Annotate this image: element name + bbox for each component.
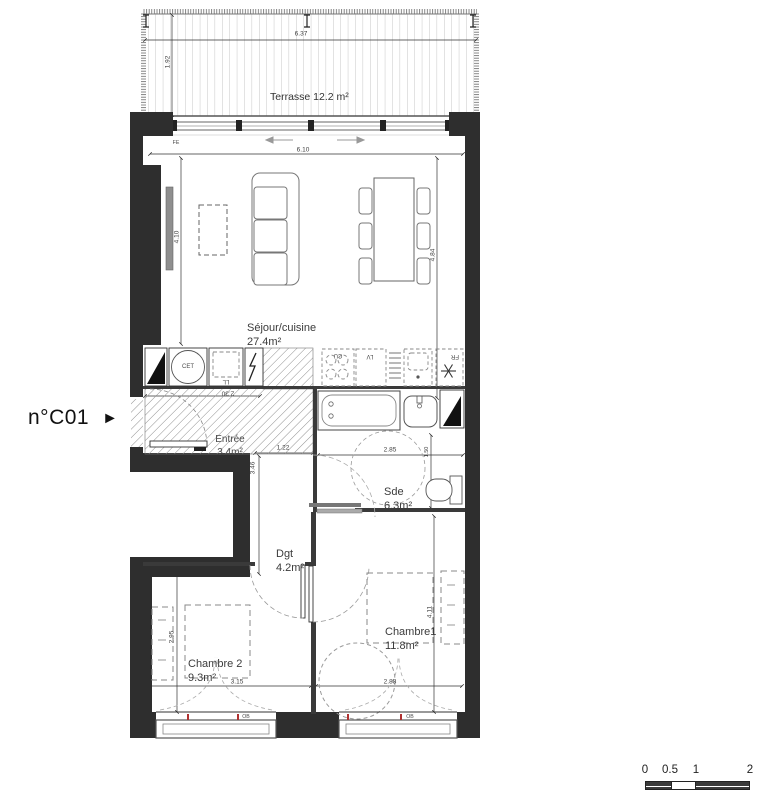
wardrobe-1 (441, 571, 464, 644)
dim-chambre1-width: 2.88 (384, 679, 397, 686)
window-mark (400, 714, 402, 720)
label-window-fe: FE (173, 140, 180, 146)
core-wall-bottom (130, 557, 250, 577)
scale-bar-graphic (645, 781, 750, 790)
dim-sde-width: 2.85 (384, 447, 397, 454)
terrace-railing-top (143, 9, 477, 14)
sliding-door-pocket (317, 509, 362, 513)
wardrobe-2 (152, 607, 173, 680)
label-fridge: FR (451, 353, 459, 359)
room-label-dgt: Dgt4.2m² (276, 518, 304, 589)
washbasin (404, 396, 437, 427)
dim-chambre2-depth: 2.95 (169, 631, 176, 644)
window-mark (347, 714, 349, 720)
dim-terrasse-width: 6.37 (295, 31, 308, 38)
coffee-table (199, 205, 227, 255)
room-label-sejour: Séjour/cuisine27.4m² (247, 292, 316, 363)
scale-tick-1: 1 (693, 764, 699, 776)
room-label-sde: Sde6.3m² (384, 456, 412, 527)
label-window-ob-right: OB (406, 714, 414, 720)
label-dishwasher: LV (367, 353, 374, 359)
room-label-chambre2: Chambre 29.3m² (188, 628, 242, 699)
living-furniture (199, 173, 430, 285)
sliding-bay-window (173, 120, 449, 143)
dim-sejour-width: 6.10 (297, 147, 310, 154)
unit-number-text: n°C01 (28, 406, 89, 430)
room-label-terrasse: Terrasse 12.2 m² (270, 64, 349, 119)
scale-tick-0: 0 (642, 764, 648, 776)
unit-number: n°C01 ► (28, 406, 118, 430)
dim-sejour-depth-right: 4.84 (430, 249, 437, 262)
dining-table (374, 178, 414, 281)
dim-sde-depth: 1.50 (424, 447, 430, 458)
terrace-railing-left (141, 13, 146, 116)
floor-plan-page: Terrasse 12.2 m² Séjour/cuisine27.4m² En… (0, 0, 779, 800)
sliding-door-leaf (309, 503, 361, 507)
dim-sejour-depth-left: 4.10 (174, 231, 181, 244)
kitchen-appliances-dashed (322, 349, 463, 386)
corridor-door-swing (313, 455, 375, 517)
toilet-bowl (426, 479, 452, 501)
wall-pilaster (166, 187, 173, 270)
dim-dgt-width: 1.22 (277, 445, 290, 452)
dim-terrasse-depth: 1.92 (165, 56, 172, 69)
kitchen-units (145, 348, 263, 386)
label-washing-machine: LL (223, 378, 230, 384)
terrace-railing-right (474, 13, 479, 116)
snowflake-icon (441, 365, 456, 378)
bedroom1-door-swing (313, 566, 369, 622)
window-mark (187, 714, 189, 720)
label-hob: CU (334, 352, 343, 358)
sliding-direction-arrows (266, 137, 364, 143)
entrance-door-leaf (150, 441, 207, 447)
entrance-arrow-icon: ► (102, 410, 118, 428)
label-window-ob-left: OB (242, 714, 250, 720)
window-mark (237, 714, 239, 720)
scale-bar: 0 0.5 1 2 (640, 764, 770, 796)
scale-tick-05: 0.5 (662, 764, 678, 776)
dim-chambre1-depth: 4.11 (427, 606, 434, 618)
scale-tick-2: 2 (747, 764, 753, 776)
dim-entree-width: 2.30 (222, 390, 235, 397)
dim-chambre2-width: 3.15 (231, 679, 244, 686)
bedroom1-door-leaf (309, 566, 313, 622)
label-water-heater: CET (182, 364, 194, 370)
dim-dgt-depth: 3.46 (250, 462, 257, 475)
bathtub (318, 391, 400, 430)
